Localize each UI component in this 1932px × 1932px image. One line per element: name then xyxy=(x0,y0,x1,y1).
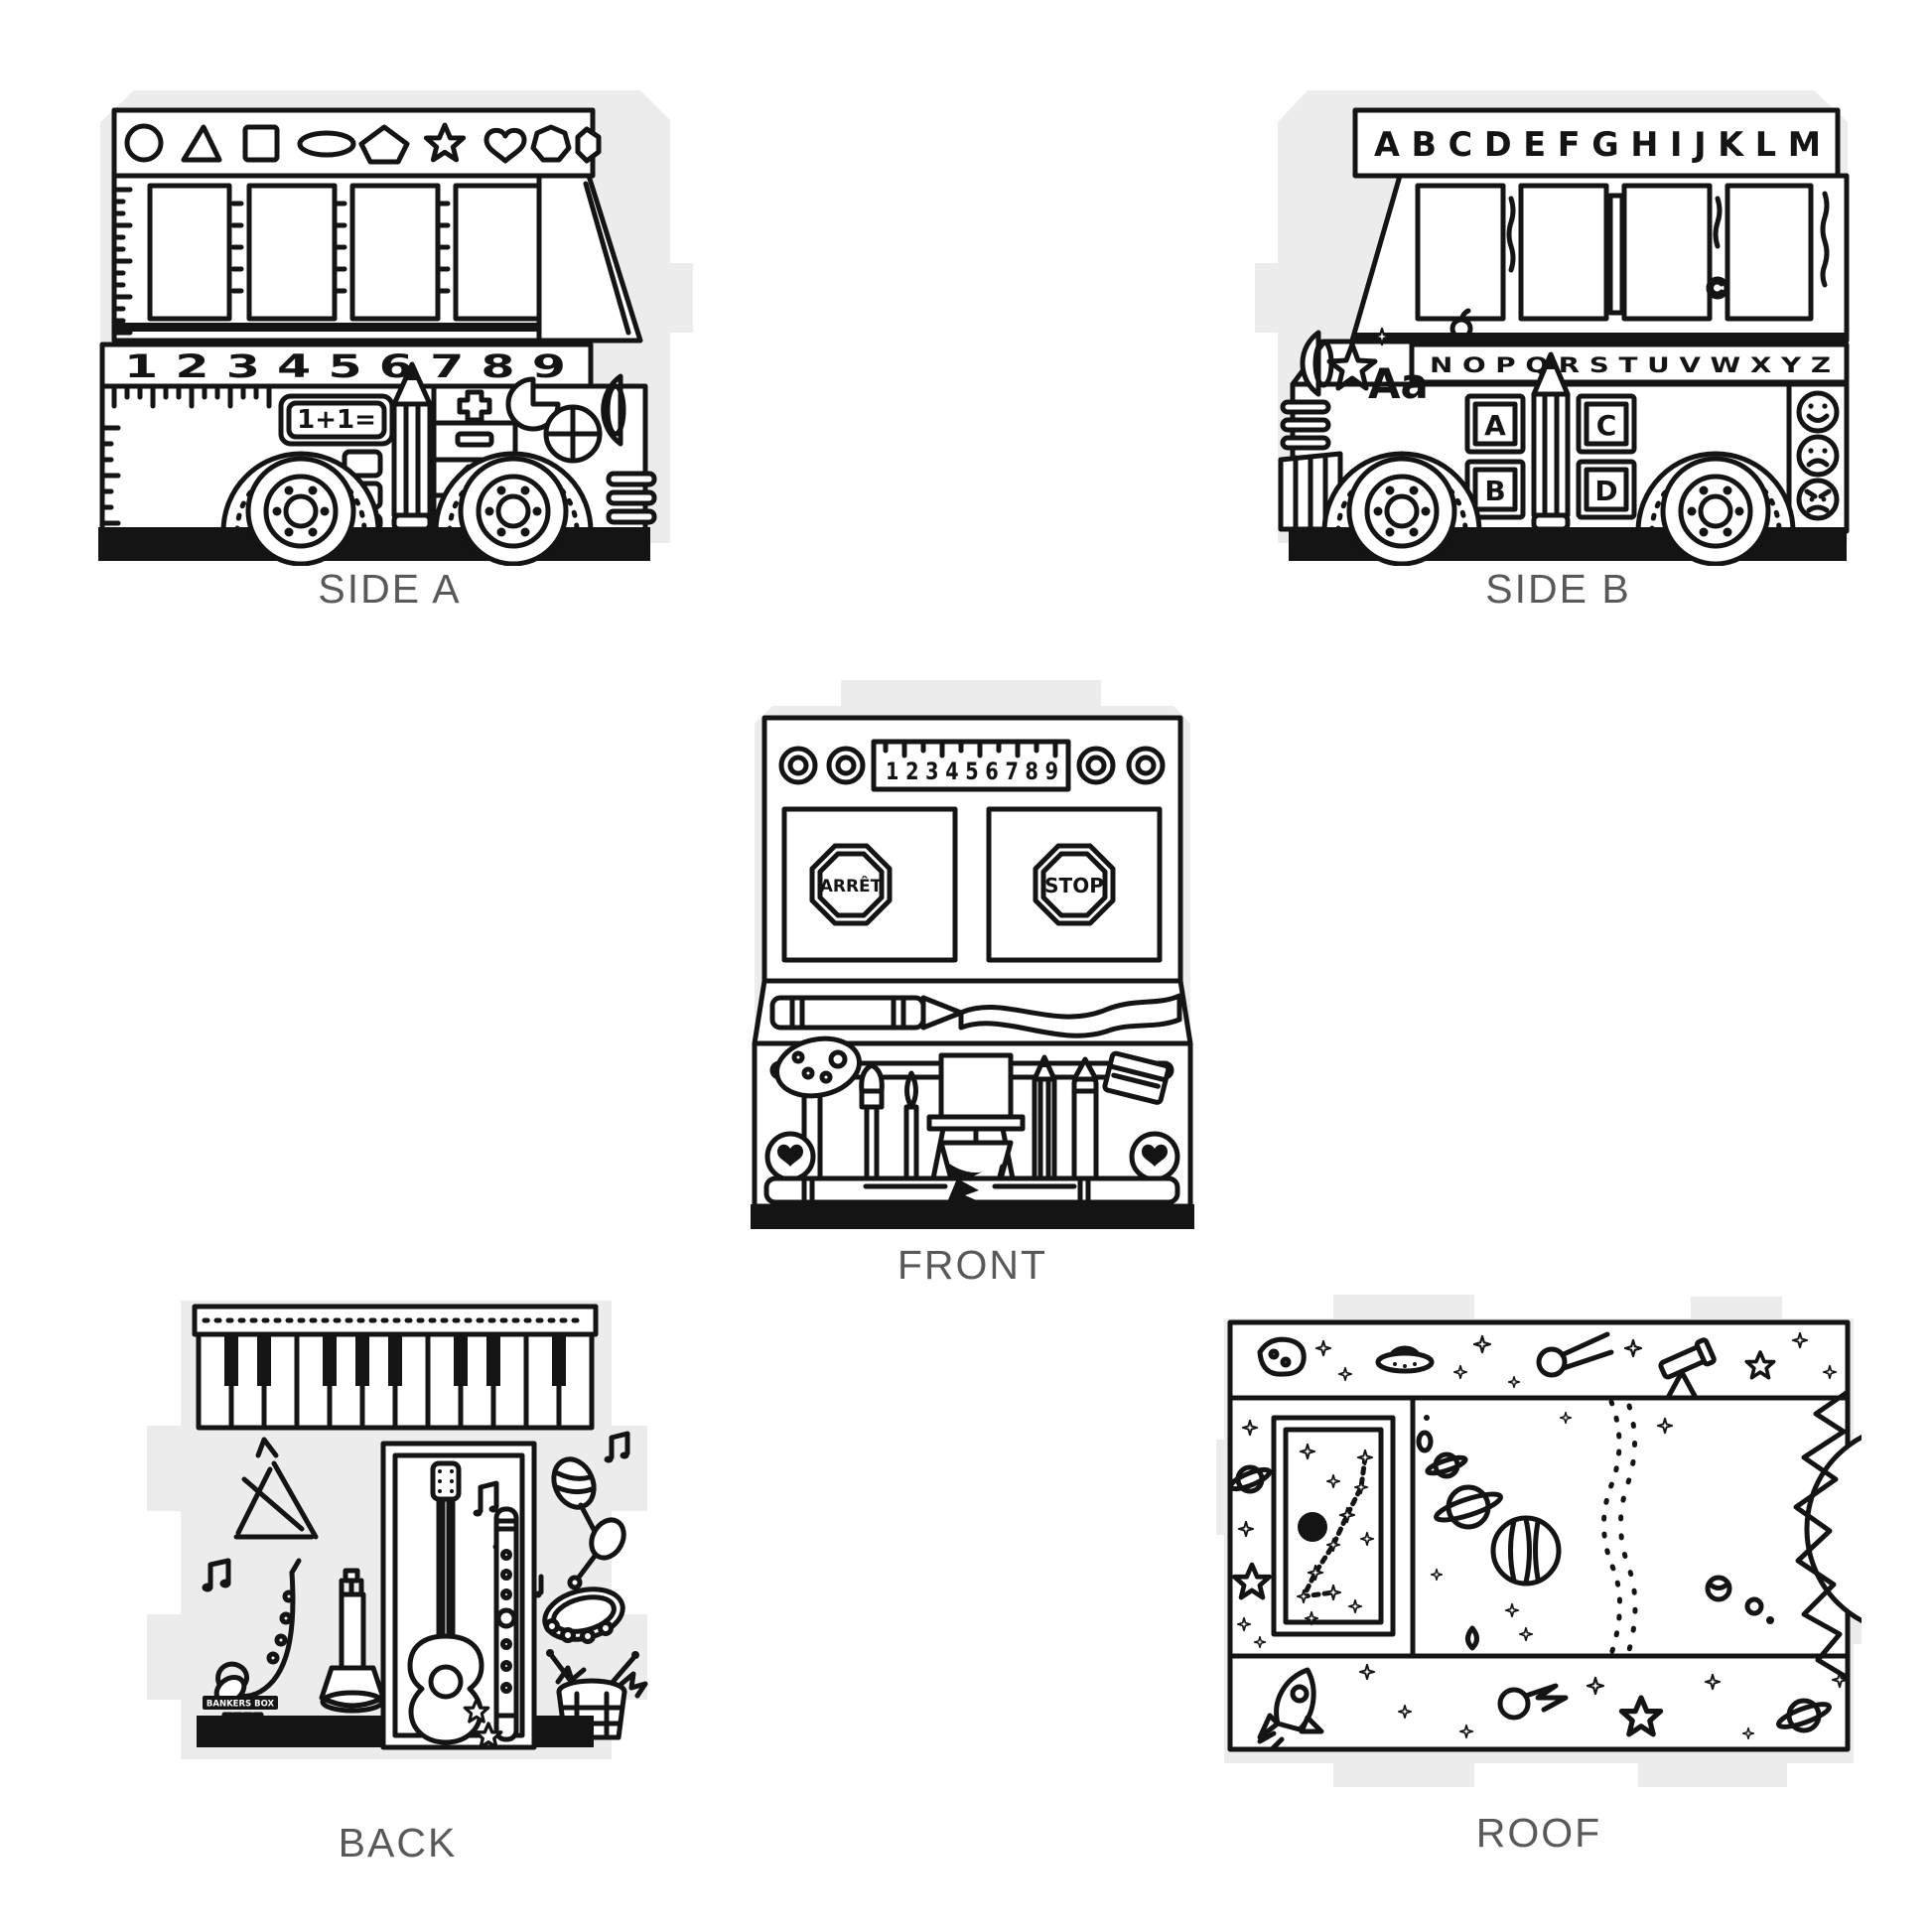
wheel-icon xyxy=(1349,459,1454,564)
oval-shape-icon xyxy=(300,133,353,155)
arret-sign: ARRÊT xyxy=(812,846,890,923)
minus-icon xyxy=(458,434,491,445)
ruler-numbers-text: 1 2 3 4 5 6 7 8 9 xyxy=(886,758,1058,785)
pencil-icon xyxy=(1035,1057,1054,1190)
roof-cap xyxy=(195,1307,596,1334)
block-letter: A xyxy=(1484,409,1506,442)
light-icon xyxy=(1079,749,1113,782)
sad-face-icon xyxy=(1799,437,1837,475)
stop-sign-text: STOP xyxy=(1044,874,1104,897)
hood xyxy=(755,981,1190,1043)
asteroid-icon xyxy=(1260,1339,1304,1374)
letter-block: A xyxy=(1467,396,1523,452)
panel-roof xyxy=(1216,1291,1862,1792)
ground-strip xyxy=(98,527,650,561)
upper-face: 1 2 3 4 5 6 7 8 9 ARRÊT STOP xyxy=(764,718,1180,981)
side-a-drawing: 1 2 3 4 5 6 7 8 9 1+1= xyxy=(84,84,695,566)
window xyxy=(1727,186,1811,319)
grille-icon xyxy=(609,474,654,522)
roof-drawing xyxy=(1216,1291,1862,1792)
heptagon-shape-icon xyxy=(533,127,569,160)
block-letter: D xyxy=(1594,475,1617,507)
grille-icon xyxy=(1283,402,1328,448)
crayon-icon xyxy=(1074,1059,1096,1190)
alphabet-strip-bottom: N O P Q R S T U V W X Y Z xyxy=(1412,345,1847,382)
ground-strip xyxy=(197,1716,383,1747)
panel-front: 1 2 3 4 5 6 7 8 9 ARRÊT STOP xyxy=(747,678,1198,1229)
letter-block: C xyxy=(1579,396,1634,452)
block-letter: C xyxy=(1596,409,1617,442)
ground-strip xyxy=(534,1716,594,1747)
gem-shape-icon xyxy=(578,129,599,161)
panel-back: BANKERS BOX xyxy=(147,1299,648,1765)
panel-side-b: A B C D E F G H I J K L M xyxy=(1253,84,1863,566)
wheel-icon xyxy=(461,459,566,564)
books-row-icon xyxy=(766,1178,1177,1202)
number-strip-text: 1 2 3 4 5 6 7 8 9 xyxy=(124,347,566,385)
window xyxy=(1418,186,1503,319)
number-strip: 1 2 3 4 5 6 7 8 9 xyxy=(102,345,591,386)
window-band xyxy=(1352,176,1847,342)
alphabet-bottom-text: N O P Q R S T U V W X Y Z xyxy=(1430,353,1831,377)
letter-block: D xyxy=(1579,462,1634,517)
sunroof-hatch xyxy=(1274,1418,1393,1634)
light-icon xyxy=(829,749,863,782)
wheel-icon xyxy=(1663,459,1768,564)
roof-label: ROOF xyxy=(1216,1813,1862,1854)
heart-light-icon xyxy=(1132,1134,1177,1179)
product-diagram-sheet: 1 2 3 4 5 6 7 8 9 1+1= xyxy=(0,0,1932,1932)
piano-keys-icon xyxy=(199,1334,592,1428)
pencil-icon xyxy=(394,364,430,529)
side-a-label: SIDE A xyxy=(84,569,695,610)
side-b-drawing: A B C D E F G H I J K L M xyxy=(1253,84,1863,566)
alphabet-strip-top: A B C D E F G H I J K L M xyxy=(1355,110,1838,176)
window xyxy=(150,186,229,319)
equation-text: 1+1= xyxy=(297,405,376,435)
ruler-strip: 1 2 3 4 5 6 7 8 9 xyxy=(874,742,1068,789)
window xyxy=(1521,186,1606,319)
window xyxy=(1624,186,1710,319)
teardrop-icon xyxy=(1468,1628,1477,1648)
heart-light-icon xyxy=(767,1134,813,1179)
small-planet-icon xyxy=(1708,1578,1729,1599)
window xyxy=(456,186,539,319)
brand-logo-text: BANKERS BOX xyxy=(207,1700,275,1710)
arret-sign-text: ARRÊT xyxy=(820,875,883,897)
pencil-icon xyxy=(1534,354,1568,529)
light-icon xyxy=(781,749,815,782)
front-drawing: 1 2 3 4 5 6 7 8 9 ARRÊT STOP xyxy=(747,678,1198,1229)
wheel-icon xyxy=(248,459,353,564)
back-label: BACK xyxy=(147,1823,648,1863)
window-band xyxy=(114,176,640,341)
window xyxy=(352,186,438,319)
light-icon xyxy=(1129,749,1163,782)
equation-badge: 1+1= xyxy=(281,396,392,444)
shapes-strip xyxy=(114,110,599,176)
block-letter: B xyxy=(1484,475,1505,507)
crayon-icon xyxy=(772,998,961,1028)
writing-sample-text: Aa xyxy=(1368,359,1429,408)
window xyxy=(249,186,335,319)
front-label: FRONT xyxy=(747,1245,1198,1286)
panel-side-a: 1 2 3 4 5 6 7 8 9 1+1= xyxy=(84,84,695,566)
alphabet-top-text: A B C D E F G H I J K L M xyxy=(1374,125,1821,165)
circle-shape-icon xyxy=(127,126,161,160)
back-drawing: BANKERS BOX xyxy=(147,1299,648,1765)
black-dot-icon xyxy=(1298,1512,1327,1542)
square-shape-icon xyxy=(245,127,277,160)
lower-face xyxy=(755,1032,1190,1206)
stop-sign: STOP xyxy=(1035,846,1113,923)
bumper xyxy=(751,1204,1194,1229)
recorder-icon xyxy=(496,1509,516,1739)
happy-face-icon xyxy=(1799,393,1837,431)
angry-face-icon xyxy=(1799,481,1837,518)
side-b-label: SIDE B xyxy=(1253,569,1863,610)
striped-planet-icon xyxy=(1493,1518,1559,1584)
